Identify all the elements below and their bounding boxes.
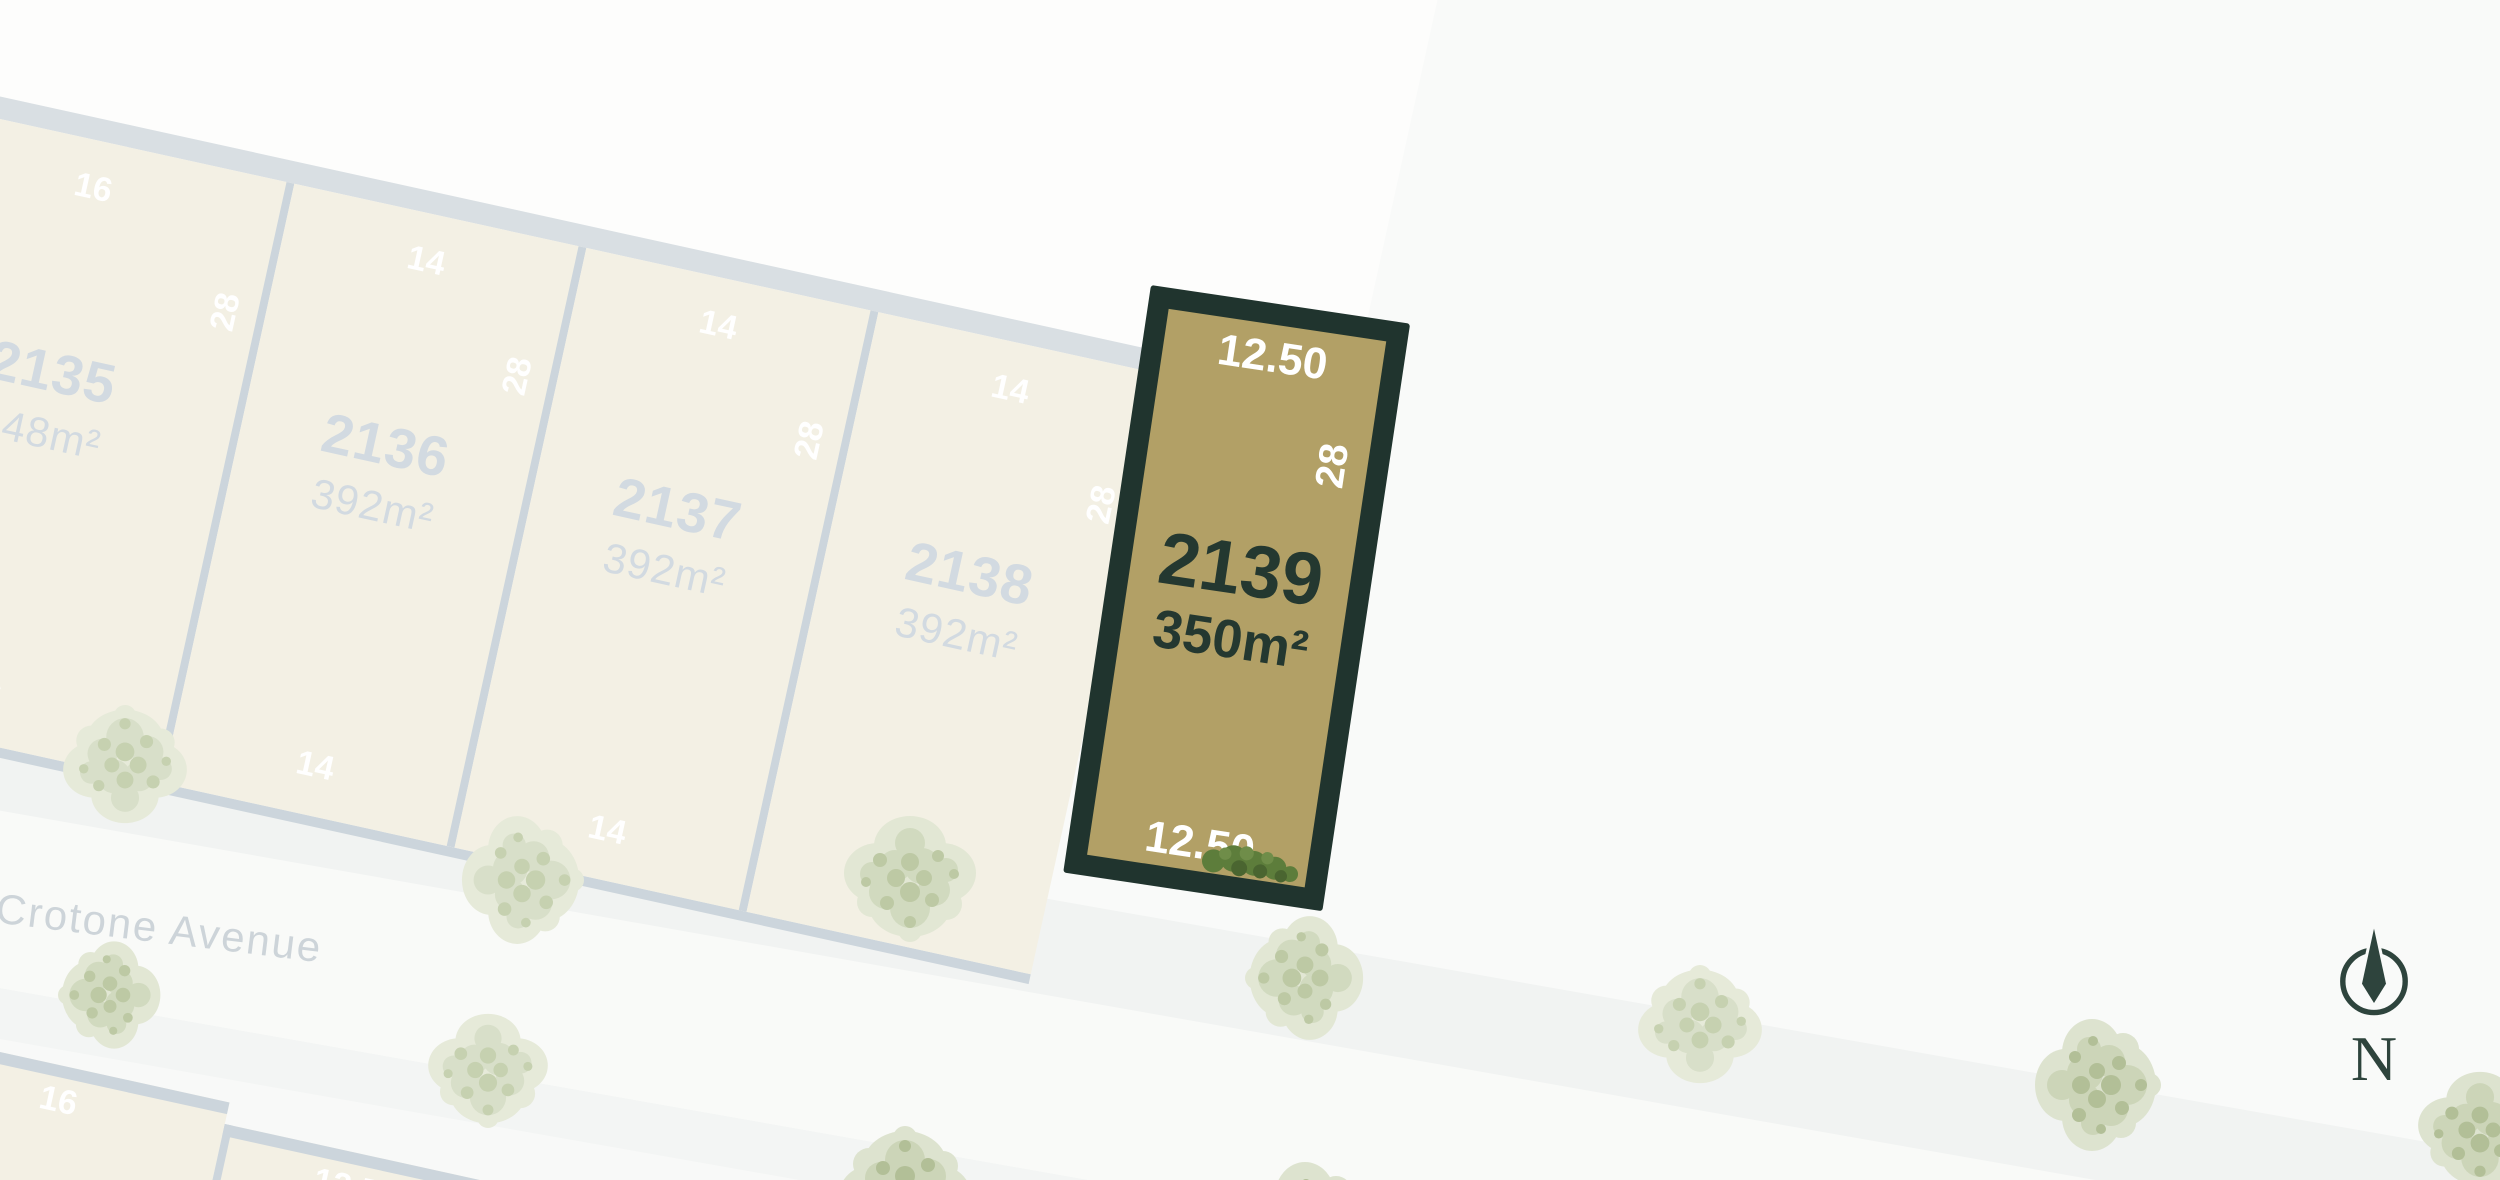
lot-depth-label: 28	[1305, 434, 1359, 498]
lot-width-top-label: 14	[864, 339, 1157, 440]
lot-width-bottom-label: 16	[0, 634, 169, 753]
lot-id-block: 2137 392m²	[517, 448, 826, 624]
lot-id-block: 2138 392m²	[810, 512, 1119, 688]
north-compass: N	[2316, 926, 2432, 1096]
lot-width-bottom-label: 14	[461, 780, 754, 881]
lot-depth-label: 28	[197, 278, 253, 346]
lot-width-top-label: 14	[572, 275, 865, 376]
lot-width-bottom-label: 14	[753, 844, 1046, 945]
lot-depth-label: 28	[781, 406, 837, 474]
lot-id-block: 2139 350m²	[1117, 515, 1355, 684]
lot-depth-label: 28	[489, 342, 545, 410]
lot-id-block: 2136 392m²	[225, 384, 534, 560]
lot-width-top-label: 12.50	[1160, 317, 1385, 399]
lot-width-bottom-label: 14	[169, 716, 462, 817]
north-arrow-icon	[2326, 926, 2422, 1020]
lot-width-top-label: 14	[280, 211, 573, 312]
north-label: N	[2316, 1022, 2432, 1096]
masterplan-canvas: Crotone Avenue 16 2135 448m² 28 16 14 21…	[0, 0, 2500, 1180]
